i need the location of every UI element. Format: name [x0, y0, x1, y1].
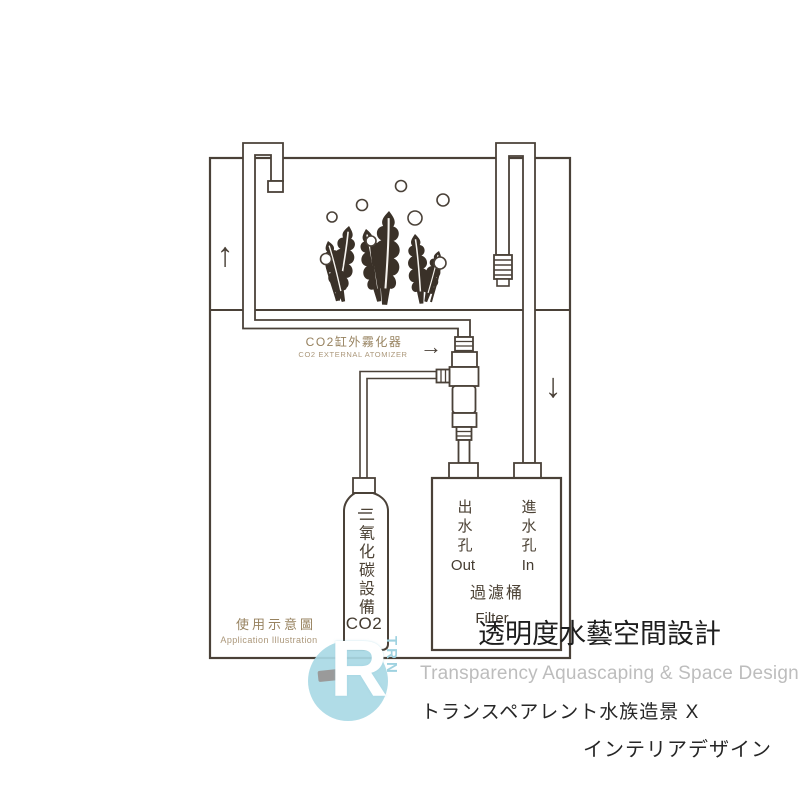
outlet-nozzle	[268, 181, 283, 192]
down-flow-arrow-icon: ↓	[545, 369, 562, 403]
filter-inlet-label-en: In	[522, 558, 535, 573]
bubble	[396, 181, 407, 192]
outlet-pipe	[243, 143, 470, 337]
bubble	[321, 254, 332, 265]
co2-tube	[360, 372, 437, 479]
logo-side-text: TRN	[383, 636, 400, 676]
watermark-brand-zh: 透明度水藝空間設計	[478, 621, 721, 648]
bubble	[434, 257, 446, 269]
atomizer-down-pipe	[459, 440, 470, 463]
watermark-brand-jp-line2: インテリアデザイン	[583, 740, 772, 760]
bubble	[327, 212, 337, 222]
product-illustration: ↑ ↓ → CO2缸外霧化器 CO2 EXTERNAL ATOMIZER 二氧化…	[0, 0, 800, 800]
up-flow-arrow-icon: ↑	[217, 238, 234, 272]
atomizer-body	[450, 367, 479, 386]
filter-inlet-label-zh: 進水孔	[521, 499, 536, 556]
bubble	[366, 236, 376, 246]
atomizer-side-port	[437, 370, 450, 383]
watermark-brand-en: Transparency Aquascaping & Space Design	[420, 664, 799, 683]
bubble	[408, 211, 422, 225]
watermark-brand-jp-line1: トランスペアレント水族造景 X	[421, 703, 699, 722]
filter-outlet-label-en: Out	[451, 558, 475, 573]
logo-letter: R	[330, 629, 388, 709]
bubble	[437, 194, 449, 206]
intake-strainer	[494, 255, 512, 286]
bubble	[357, 200, 368, 211]
filter-name-zh: 過濾桶	[470, 586, 524, 602]
intake-pipe	[494, 143, 535, 463]
filter-in-port	[514, 463, 541, 478]
caption-en: Application Illustration	[220, 636, 317, 645]
filter-out-port	[449, 463, 478, 478]
caption-zh: 使用示意圖	[236, 618, 316, 631]
atomizer-bottom-barb	[457, 427, 472, 440]
atomizer-top-barb	[455, 337, 473, 352]
atomizer-chamber	[453, 386, 476, 413]
atomizer-top-nut	[452, 352, 477, 367]
atomizer-label-en: CO2 EXTERNAL ATOMIZER	[298, 351, 407, 359]
cylinder-valve	[353, 478, 375, 493]
co2-atomizer	[437, 337, 479, 463]
aquatic-plants	[319, 210, 446, 305]
cylinder-label-vertical: 二氧化碳設備	[356, 506, 372, 617]
filter-outlet-label-zh: 出水孔	[457, 499, 472, 556]
atomizer-pointer-arrow-icon: →	[420, 336, 442, 358]
atomizer-bottom-nut	[453, 413, 477, 427]
atomizer-label-zh: CO2缸外霧化器	[306, 336, 403, 348]
